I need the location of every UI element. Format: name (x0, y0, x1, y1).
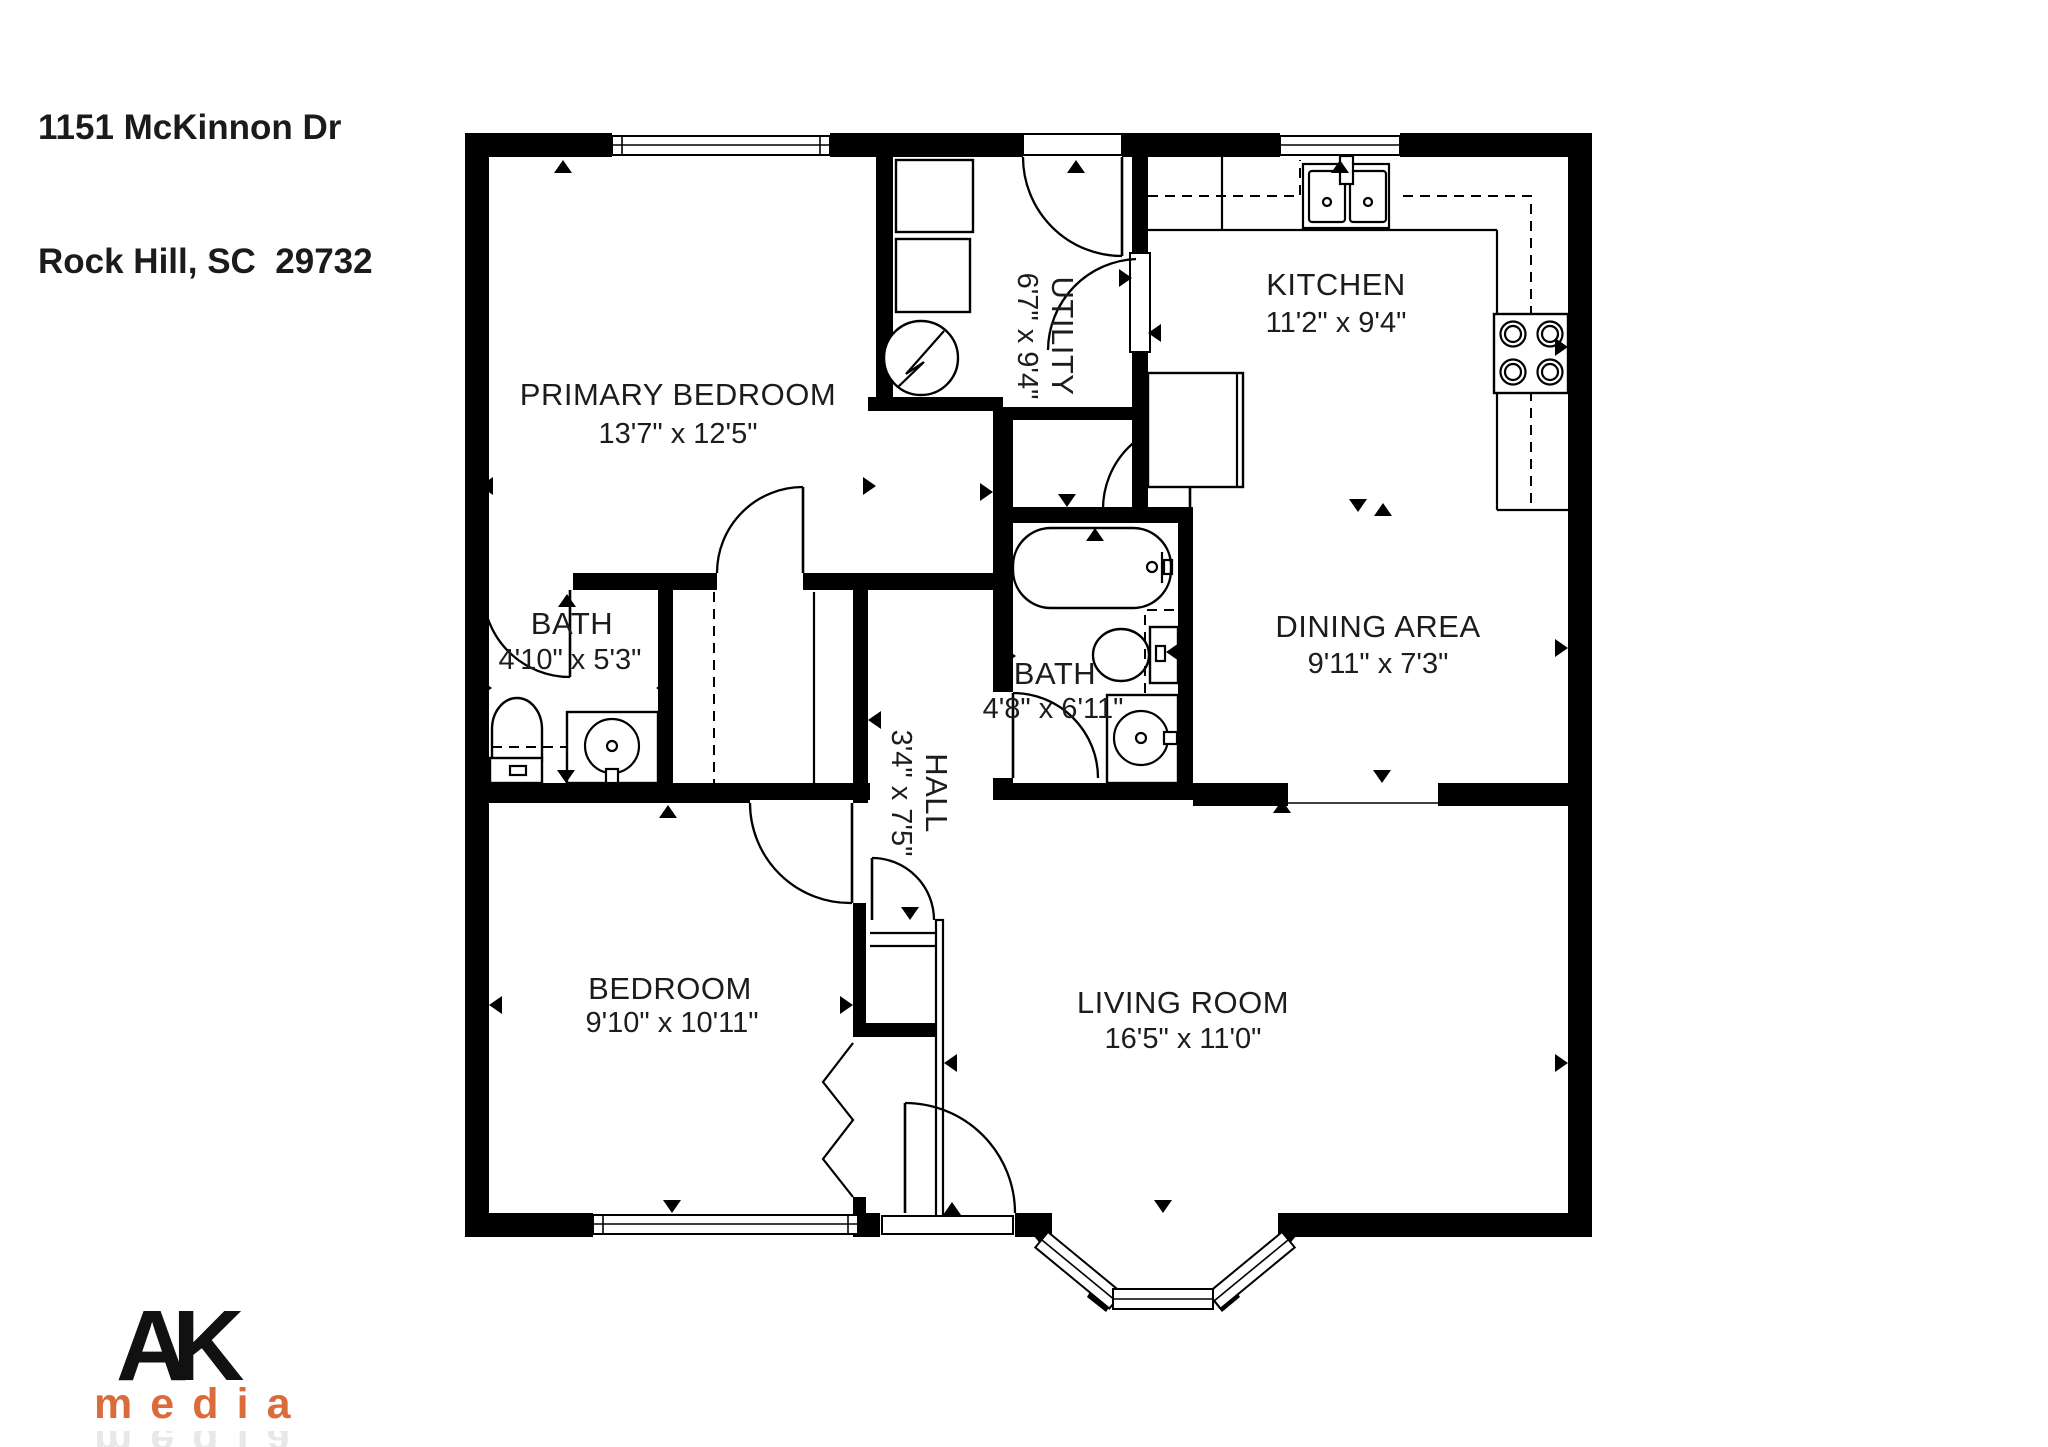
floor-plan-page: PRIMARY BEDROOM 13'7" x 12'5" UTILITY 6'… (0, 0, 2048, 1447)
logo-media-text: media (94, 1380, 348, 1429)
room-label-bath-2: BATH (1014, 656, 1096, 691)
room-dims-kitchen: 11'2" x 9'4" (1266, 307, 1407, 339)
room-label-hall-group: HALL 3'4" x 7'5" (885, 730, 954, 857)
room-dims-hall: 3'4" x 7'5" (885, 730, 917, 857)
room-label-bedroom: BEDROOM (588, 971, 752, 1006)
room-label-utility-group: UTILITY 6'7" x 9'4" (1011, 273, 1080, 400)
kitchen-window (1280, 136, 1400, 155)
water-heater (884, 321, 958, 395)
refrigerator (1148, 373, 1243, 487)
primary-closet-door (717, 487, 803, 573)
bedroom-closet-bifold-door (823, 1043, 853, 1197)
kitchen-sink (1303, 156, 1389, 228)
address-line-2: Rock Hill, SC 29732 (38, 240, 373, 285)
room-label-dining-area: DINING AREA (1275, 609, 1480, 644)
room-dims-bedroom: 9'10" x 10'11" (585, 1007, 758, 1039)
room-dims-utility: 6'7" x 9'4" (1011, 273, 1043, 400)
room-dims-bath-1: 4'10" x 5'3" (499, 644, 642, 676)
utility-exterior-door (1023, 134, 1122, 256)
dryer (896, 239, 970, 312)
bath-1-vanity (567, 712, 658, 783)
bath-1-toilet (490, 698, 542, 783)
room-dims-bath-2: 4'8" x 6'11" (983, 693, 1124, 725)
room-label-hall: HALL (919, 753, 954, 833)
room-label-living-room: LIVING ROOM (1077, 985, 1289, 1020)
room-label-utility: UTILITY (1045, 277, 1080, 396)
primary-closet-rods (714, 592, 814, 783)
bedroom-door (750, 803, 852, 903)
room-dims-primary-bedroom: 13'7" x 12'5" (598, 418, 757, 450)
ak-media-logo: AK media media (88, 1300, 348, 1447)
address-line-1: 1151 McKinnon Dr (38, 106, 373, 151)
room-dims-dining-area: 9'11" x 7'3" (1308, 648, 1449, 680)
logo-ak-text: AK (116, 1300, 348, 1392)
property-address: 1151 McKinnon Dr Rock Hill, SC 29732 (38, 16, 373, 374)
room-label-bath-1: BATH (531, 606, 613, 641)
bedroom-window (593, 1215, 858, 1234)
primary-bedroom-window (612, 136, 830, 155)
washer (896, 160, 973, 232)
bath-2-toilet (1093, 627, 1178, 683)
bay-window (1035, 1232, 1294, 1309)
room-dims-living-room: 16'5" x 11'0" (1105, 1023, 1262, 1055)
room-label-layer: PRIMARY BEDROOM 13'7" x 12'5" UTILITY 6'… (499, 267, 1481, 1055)
linen-closet-shelves (870, 933, 936, 946)
room-label-kitchen: KITCHEN (1266, 267, 1406, 302)
room-label-primary-bedroom: PRIMARY BEDROOM (520, 377, 836, 412)
logo-reflection: media (94, 1431, 348, 1447)
linen-closet-door (872, 858, 934, 920)
